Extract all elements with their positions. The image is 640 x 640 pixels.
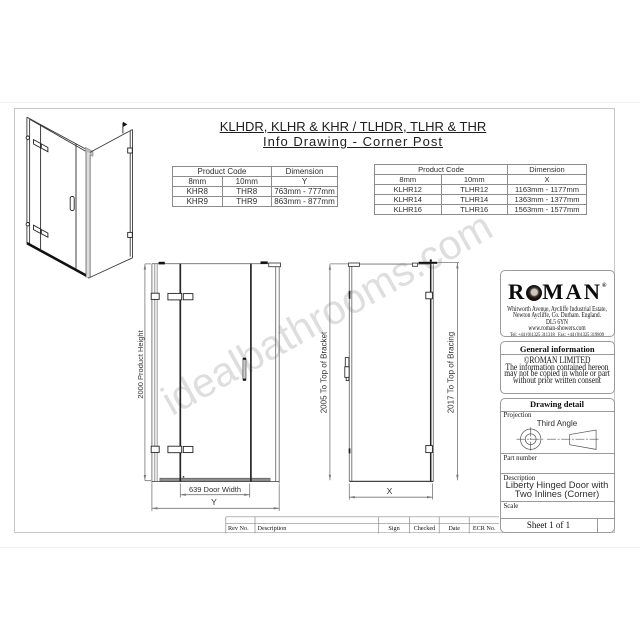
svg-text:Date: Date xyxy=(448,525,460,532)
svg-text:Sign: Sign xyxy=(388,525,399,532)
svg-text:Rev No.: Rev No. xyxy=(228,525,249,532)
svg-text:Description: Description xyxy=(258,525,287,532)
svg-text:Checked: Checked xyxy=(414,525,437,532)
svg-text:ECR No.: ECR No. xyxy=(473,525,496,532)
